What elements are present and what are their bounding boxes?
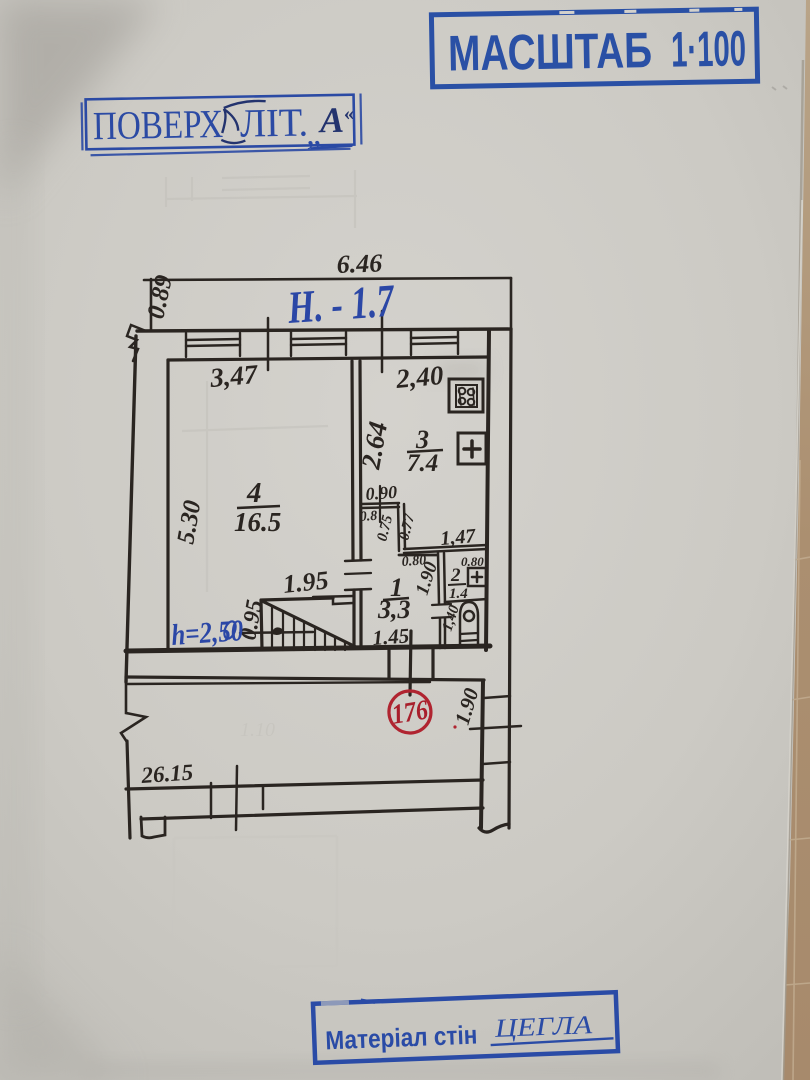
svg-text:ЦЕГЛА: ЦЕГЛА [493,1010,592,1043]
svg-text:3,3: 3,3 [377,595,411,624]
svg-text:4: 4 [246,477,262,509]
svg-text:ПОВЕРХ: ПОВЕРХ [93,101,224,148]
svg-text:Н. - 1.7: Н. - 1.7 [285,275,397,333]
svg-text:1·100: 1·100 [671,20,747,77]
svg-text:ЛІТ.: ЛІТ. [240,99,309,145]
svg-text:0.8: 0.8 [359,509,378,525]
svg-text:1.95: 1.95 [282,565,330,599]
svg-text:6.46: 6.46 [336,248,382,279]
svg-text:1,47: 1,47 [440,525,478,550]
svg-text:«: « [344,103,354,125]
svg-text:176: 176 [390,695,430,731]
svg-text:26.15: 26.15 [140,759,194,788]
svg-text:2,40: 2,40 [394,360,445,394]
svg-text:1.45: 1.45 [372,623,410,650]
svg-text:МАСШТАБ: МАСШТАБ [448,22,653,82]
svg-text:1.4: 1.4 [449,586,468,602]
svg-text:2: 2 [450,565,461,586]
svg-text:1.10: 1.10 [240,719,275,741]
svg-text:А: А [318,100,345,140]
svg-text:7.4: 7.4 [407,450,438,477]
svg-text:Матеріал стін: Матеріал стін [325,1020,478,1056]
svg-text:0.90: 0.90 [365,482,398,504]
svg-text:16.5: 16.5 [234,507,281,537]
svg-text:0.80: 0.80 [461,554,484,569]
svg-text:3,47: 3,47 [208,359,260,393]
